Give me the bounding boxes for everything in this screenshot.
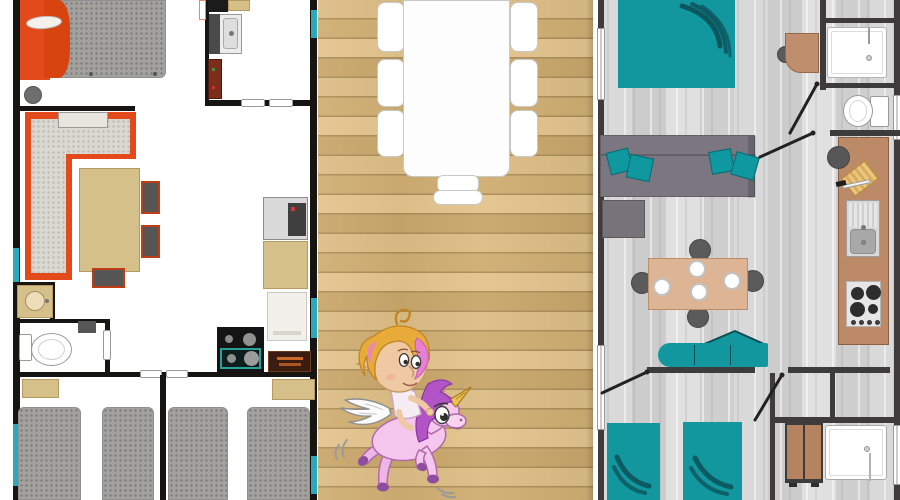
burner <box>243 333 256 346</box>
washbasin <box>25 291 45 311</box>
shelf <box>228 0 250 11</box>
deck-chair <box>510 59 538 107</box>
fairy-unicorn-illustration <box>325 300 475 500</box>
dining-table <box>79 168 140 272</box>
door-swing-lines <box>593 0 900 500</box>
chair <box>141 225 160 258</box>
hoof <box>427 475 439 484</box>
wall-right <box>310 0 317 500</box>
window <box>311 298 317 338</box>
tall-cabinet <box>208 59 222 99</box>
indicator-dot <box>212 86 215 89</box>
floorplan-collage <box>0 0 900 500</box>
unicorn-horn <box>449 387 471 407</box>
eye-glint <box>441 413 444 416</box>
faucet <box>45 299 49 303</box>
headboard-shelf <box>272 379 315 400</box>
indicator-dot <box>212 68 215 71</box>
cabinet-handle <box>273 331 301 335</box>
girl-hand <box>426 408 433 415</box>
nostril <box>460 419 463 422</box>
door-leaf <box>103 330 111 360</box>
wall-shelf <box>78 321 96 333</box>
oven-label <box>277 357 303 360</box>
chair <box>92 268 125 288</box>
window <box>311 456 317 494</box>
sofa-headrest <box>58 112 108 128</box>
deck-edge-shadow <box>586 0 593 500</box>
stool <box>24 86 42 104</box>
indicator-dot <box>291 207 295 211</box>
faucet <box>229 31 234 36</box>
right-floorplan <box>593 0 900 500</box>
deck-chair <box>377 2 405 52</box>
hair-curl <box>396 310 410 324</box>
burner <box>244 351 259 366</box>
door-leaf <box>166 370 188 378</box>
deck-chair <box>510 110 538 157</box>
sink-vanity-door <box>209 14 220 54</box>
chair <box>141 181 160 214</box>
fridge <box>263 197 308 240</box>
deck-table <box>403 0 510 177</box>
deck-end-chair-back <box>433 190 483 205</box>
door-frame <box>199 0 206 20</box>
single-bed <box>102 407 154 500</box>
toilet-bowl <box>31 333 72 366</box>
counter-black <box>208 0 228 12</box>
wall-bedroom-divider <box>160 375 166 500</box>
window <box>13 248 19 282</box>
bed-foot <box>89 72 93 76</box>
girl-pupil <box>403 360 407 364</box>
toilet-seat <box>38 339 65 360</box>
washbasin-cabinet <box>17 285 53 318</box>
door-leaf <box>140 370 162 378</box>
microwave-oven <box>268 351 311 372</box>
window <box>311 10 317 38</box>
hob-frame <box>220 348 261 369</box>
deck-chair <box>377 110 405 157</box>
girl-eye <box>411 356 420 369</box>
burner <box>227 354 236 363</box>
deck-terrace <box>318 0 593 500</box>
oven-label <box>279 363 301 366</box>
deck-chair <box>510 2 538 52</box>
door-leaf <box>241 99 265 107</box>
single-bed <box>18 407 81 500</box>
girl-eye <box>399 354 408 367</box>
unicorn-wing <box>341 399 391 425</box>
sofa-cushion <box>31 150 66 273</box>
bed-drape-orange <box>44 0 70 78</box>
sink-basin <box>223 18 238 49</box>
girl-pupil <box>415 362 419 366</box>
single-bed <box>168 407 228 500</box>
wall-bedroom-bottom <box>13 106 135 111</box>
gas-hob <box>217 327 264 372</box>
door-leaf <box>269 99 293 107</box>
kitchen-cabinet <box>263 241 308 289</box>
cabinet-white <box>267 292 307 341</box>
deck-chair <box>377 59 405 107</box>
single-bed <box>247 407 310 500</box>
left-floorplan <box>0 0 318 500</box>
burner <box>225 335 233 343</box>
bed-foot <box>153 72 157 76</box>
headboard-shelf <box>22 379 59 398</box>
hoof <box>377 483 389 492</box>
blush <box>387 374 396 380</box>
